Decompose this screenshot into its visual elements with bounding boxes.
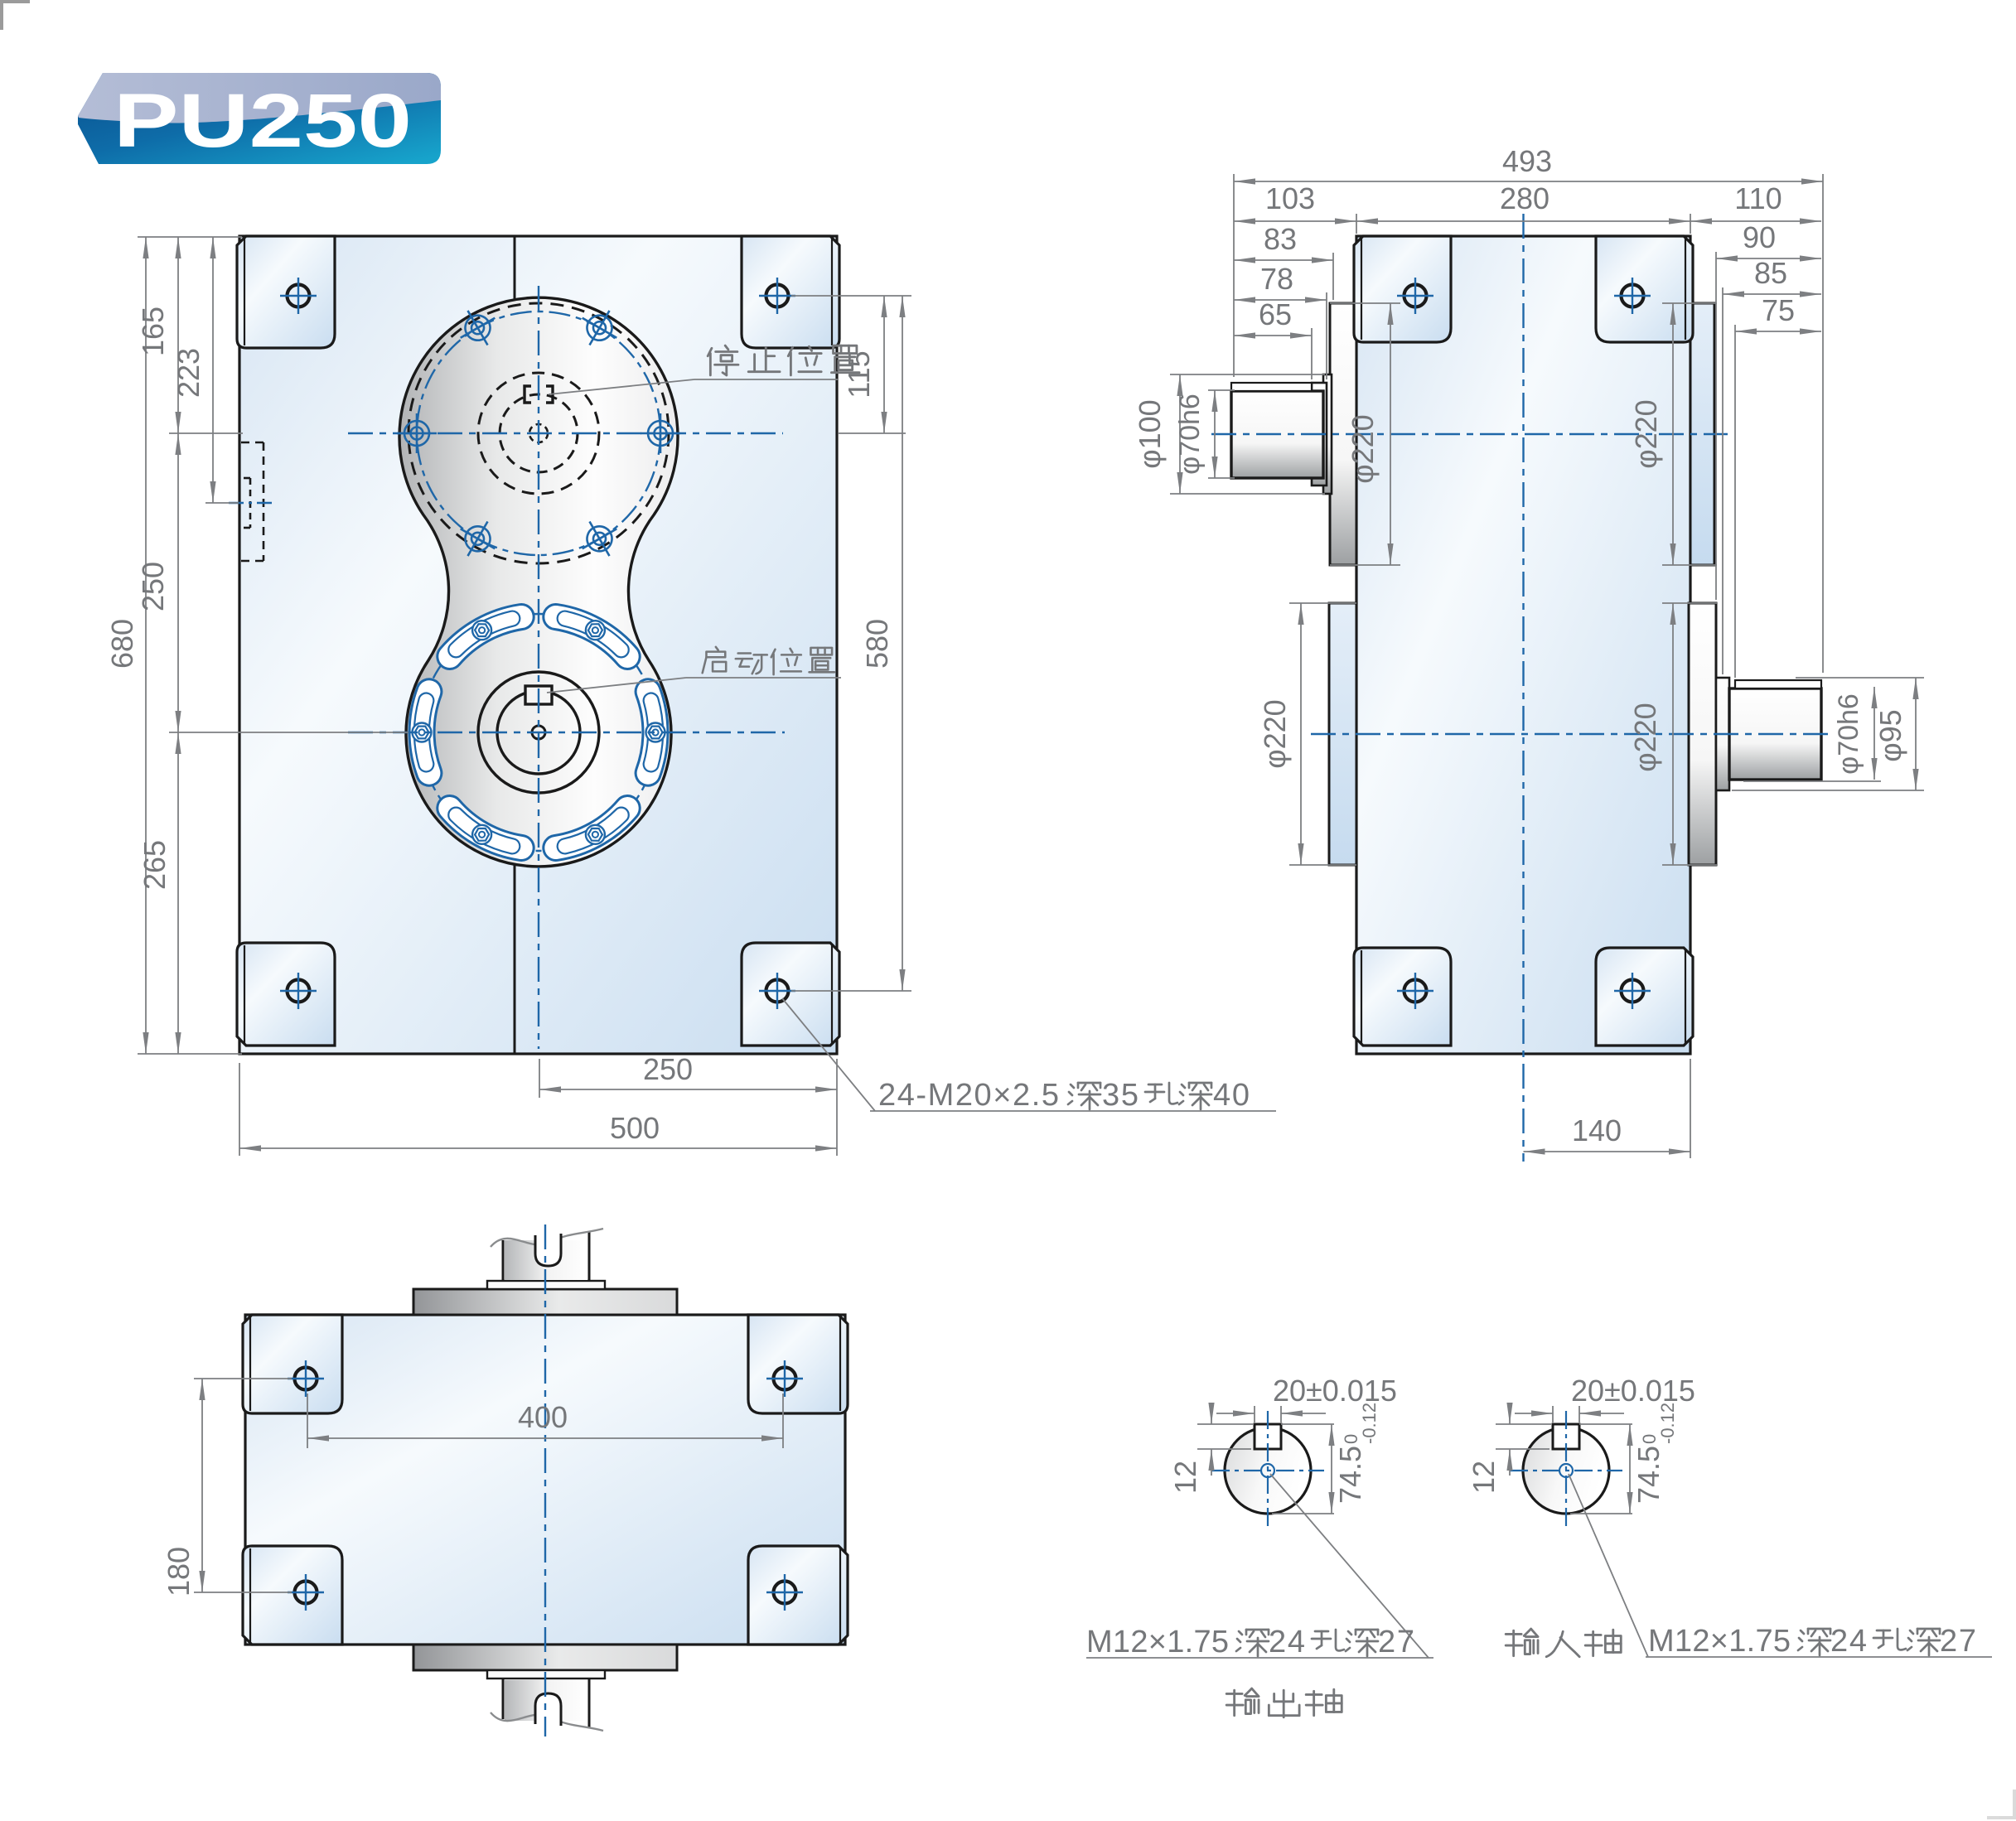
svg-text:φ70h6: φ70h6: [1833, 693, 1864, 775]
svg-text:-0.12: -0.12: [1359, 1403, 1380, 1444]
svg-text:75: 75: [1762, 293, 1795, 327]
svg-text:24-M20×2.5: 24-M20×2.5: [878, 1078, 1059, 1113]
svg-text:M12×1.75: M12×1.75: [1086, 1625, 1229, 1659]
svg-text:φ220: φ220: [1628, 703, 1662, 771]
svg-text:500: 500: [610, 1111, 660, 1145]
svg-text:-0.12: -0.12: [1657, 1403, 1678, 1444]
svg-text:φ220: φ220: [1258, 699, 1292, 768]
svg-text:35: 35: [1102, 1078, 1139, 1113]
svg-text:40: 40: [1213, 1078, 1250, 1113]
svg-text:265: 265: [138, 840, 172, 890]
svg-text:φ70h6: φ70h6: [1174, 394, 1206, 475]
svg-text:85: 85: [1754, 256, 1787, 290]
svg-text:165: 165: [136, 307, 170, 356]
svg-text:φ100: φ100: [1133, 399, 1167, 468]
svg-text:400: 400: [518, 1400, 568, 1434]
svg-text:223: 223: [172, 348, 205, 398]
svg-text:φ220: φ220: [1346, 414, 1380, 483]
svg-text:140: 140: [1572, 1113, 1622, 1147]
svg-text:12: 12: [1467, 1461, 1501, 1494]
svg-text:74.5: 74.5: [1333, 1446, 1367, 1504]
svg-text:φ220: φ220: [1629, 399, 1663, 468]
svg-text:27: 27: [1940, 1624, 1976, 1659]
svg-text:90: 90: [1743, 220, 1776, 254]
svg-text:680: 680: [105, 619, 139, 669]
svg-text:27: 27: [1378, 1625, 1414, 1659]
svg-text:65: 65: [1259, 297, 1292, 331]
svg-text:M12×1.75: M12×1.75: [1648, 1624, 1791, 1659]
svg-text:103: 103: [1265, 181, 1315, 215]
svg-text:493: 493: [1502, 144, 1552, 178]
svg-text:PU250: PU250: [114, 78, 412, 163]
svg-text:74.5: 74.5: [1632, 1446, 1665, 1504]
svg-text:24: 24: [1269, 1625, 1305, 1659]
svg-text:280: 280: [1500, 181, 1549, 215]
svg-text:24: 24: [1830, 1624, 1867, 1659]
svg-text:110: 110: [1734, 181, 1782, 215]
svg-text:83: 83: [1264, 222, 1297, 256]
svg-text:φ95: φ95: [1873, 709, 1907, 761]
svg-text:180: 180: [162, 1547, 196, 1596]
svg-text:250: 250: [136, 562, 170, 611]
svg-text:12: 12: [1168, 1461, 1202, 1494]
svg-text:250: 250: [643, 1052, 693, 1086]
svg-text:78: 78: [1260, 262, 1293, 296]
svg-text:580: 580: [860, 619, 894, 669]
